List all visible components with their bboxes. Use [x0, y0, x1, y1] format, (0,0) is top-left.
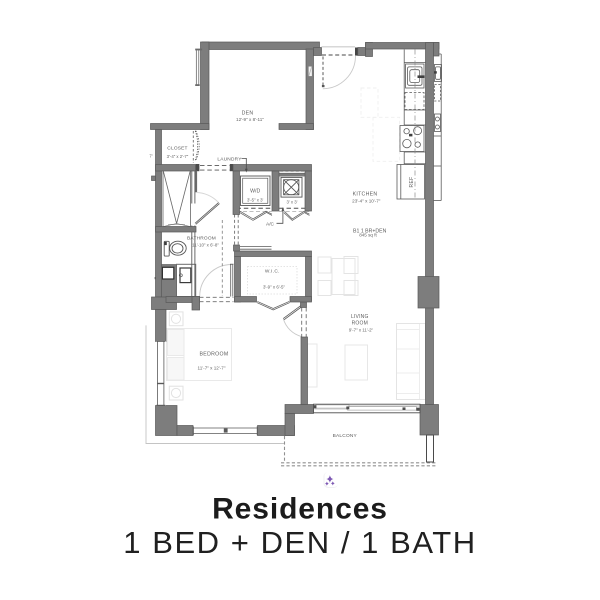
svg-text:Residences: Residences — [212, 493, 388, 526]
svg-text:3'-4" x 2'-7": 3'-4" x 2'-7" — [167, 154, 189, 159]
svg-text:REF: REF — [409, 177, 415, 188]
svg-text:KITCHEN: KITCHEN — [353, 191, 378, 197]
svg-text:11'-10" x 6'-8": 11'-10" x 6'-8" — [192, 242, 219, 247]
svg-text:BEDROOM: BEDROOM — [200, 351, 229, 357]
svg-text:A/C: A/C — [266, 222, 275, 228]
svg-text:BATHROOM: BATHROOM — [187, 236, 216, 242]
svg-text:3'-9" x 6'-5": 3'-9" x 6'-5" — [263, 285, 286, 290]
svg-text:ROOM: ROOM — [352, 320, 368, 326]
svg-text:W.I.C.: W.I.C. — [265, 268, 280, 274]
svg-text:7': 7' — [149, 154, 152, 159]
svg-text:LIVING: LIVING — [351, 314, 369, 320]
svg-text:W/D: W/D — [250, 188, 260, 194]
svg-text:845 sq ft: 845 sq ft — [359, 233, 377, 238]
svg-text:1 BED + DEN / 1 BATH: 1 BED + DEN / 1 BATH — [123, 525, 476, 560]
svg-text:11'-7" x 12'-7": 11'-7" x 12'-7" — [198, 366, 226, 371]
svg-text:BALCONY: BALCONY — [333, 433, 358, 439]
svg-text:3' x 3': 3' x 3' — [287, 199, 298, 204]
svg-text:3'-5" x 3': 3'-5" x 3' — [247, 198, 263, 203]
svg-text:12'-9" x 8'-11": 12'-9" x 8'-11" — [236, 117, 264, 122]
svg-text:23'-4" x 10'-7": 23'-4" x 10'-7" — [352, 199, 381, 204]
svg-text:LAUNDRY: LAUNDRY — [217, 157, 242, 163]
svg-text:CLOSET: CLOSET — [167, 146, 187, 152]
svg-text:DEN: DEN — [242, 111, 254, 117]
svg-text:9'-7" x 11'-2": 9'-7" x 11'-2" — [349, 328, 374, 333]
